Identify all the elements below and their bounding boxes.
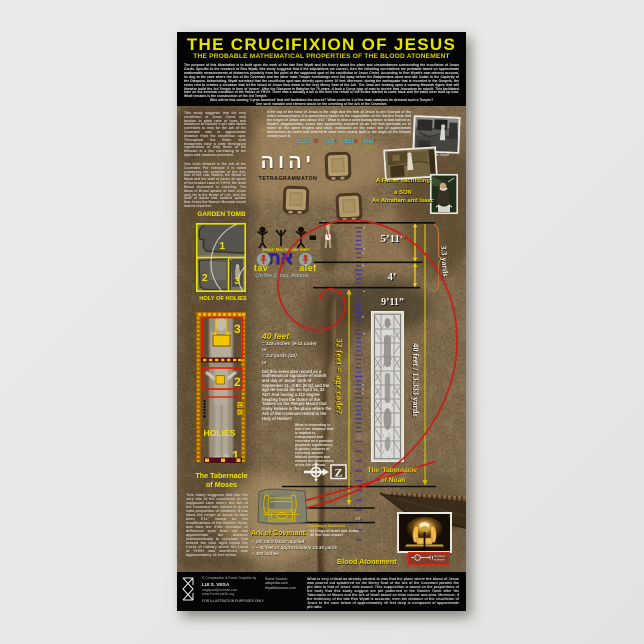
svg-text:the blood: the blood — [434, 554, 445, 558]
svg-text:Z: Z — [335, 466, 343, 480]
svg-text:covenant: covenant — [434, 557, 445, 561]
